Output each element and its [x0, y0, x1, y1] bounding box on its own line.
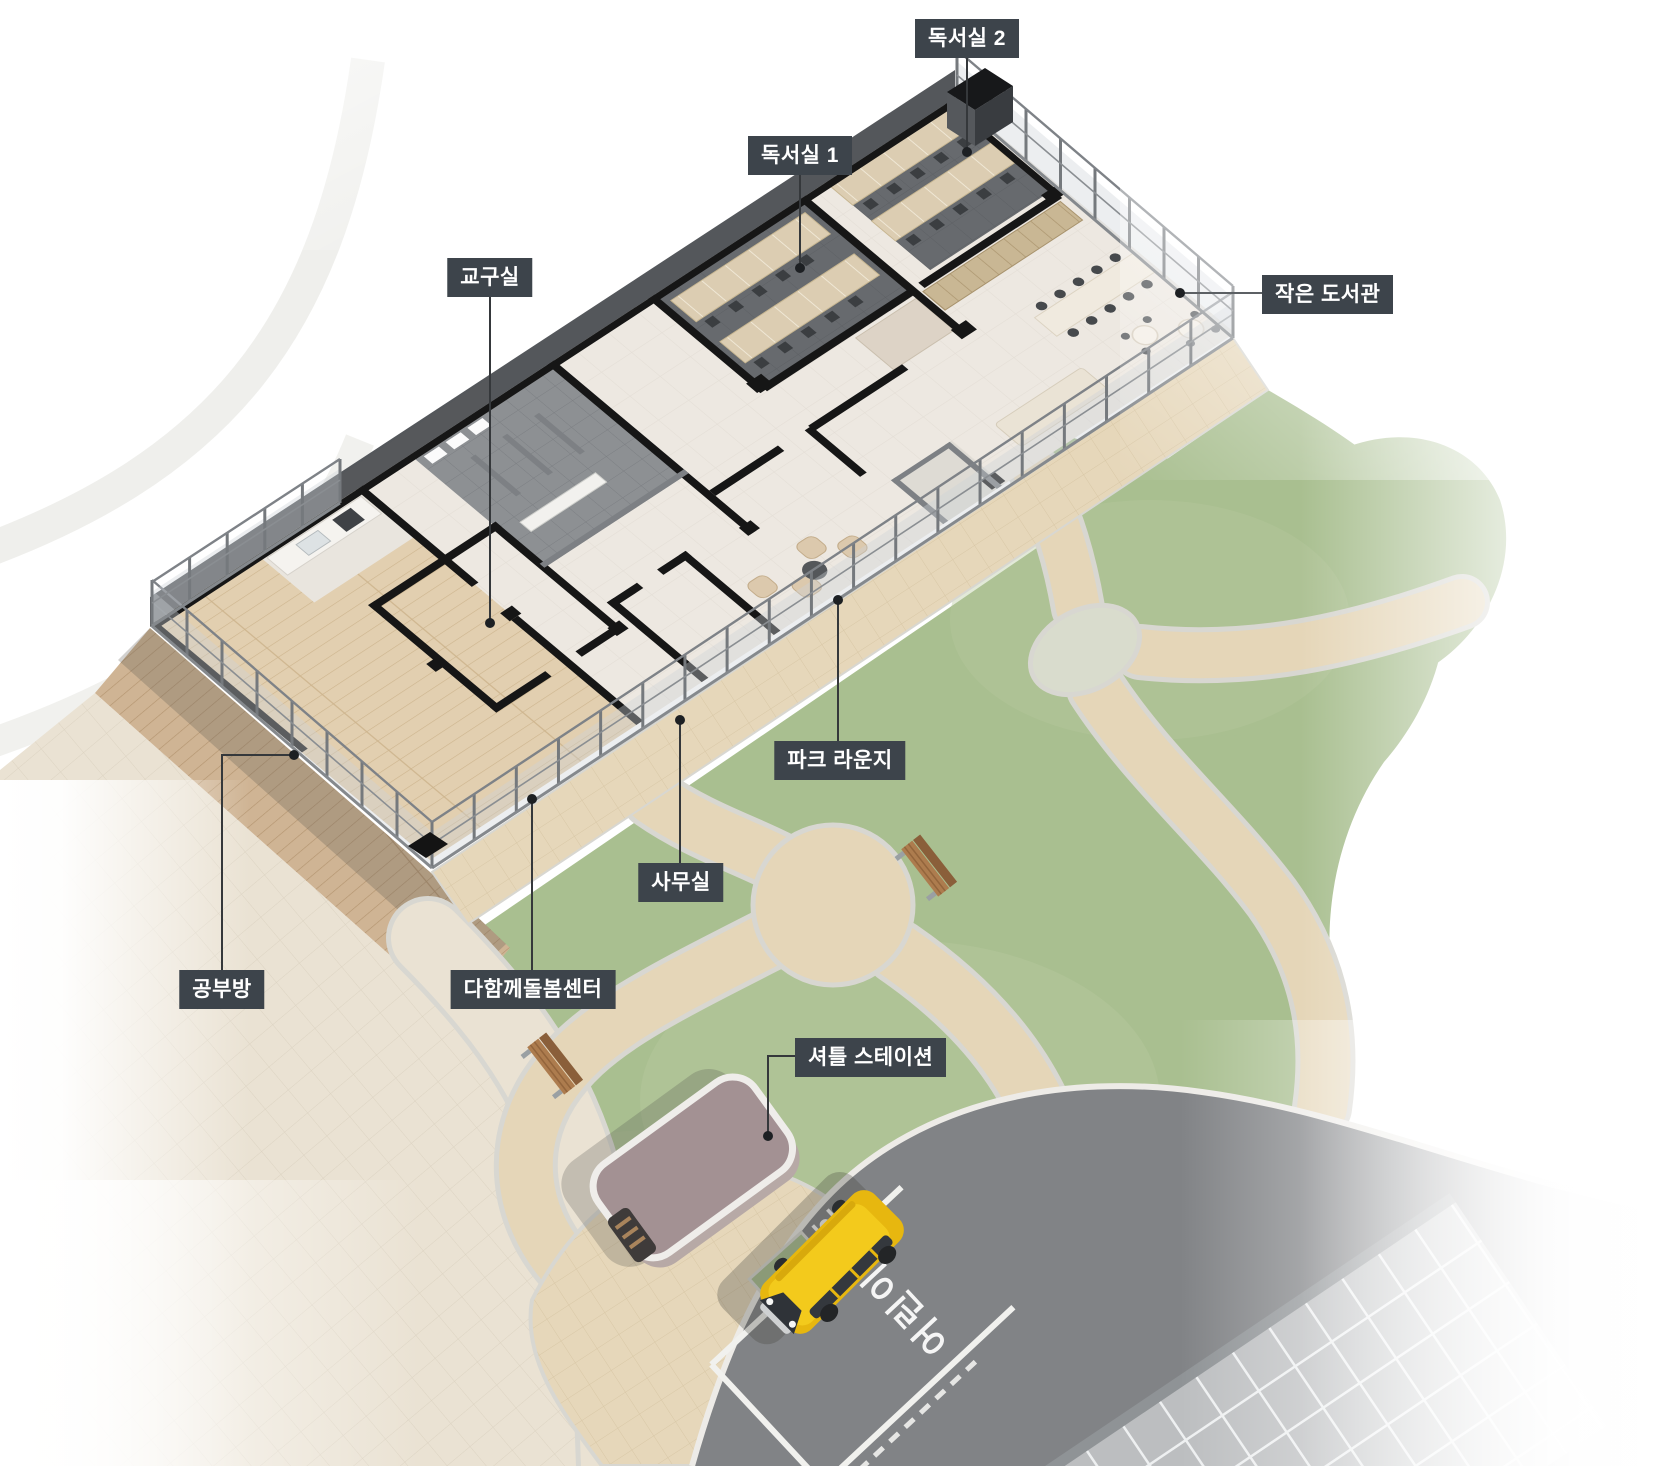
label-reading-room-2: 독서실 2 — [915, 19, 1019, 58]
label-shuttle-station: 셔틀 스테이션 — [795, 1038, 946, 1077]
label-study-room: 공부방 — [179, 970, 264, 1009]
label-reading-room-1: 독서실 1 — [748, 136, 852, 175]
label-park-lounge: 파크 라운지 — [774, 741, 905, 780]
annotated-floorplan-scene: 어린이보호 — [0, 0, 1672, 1466]
scene-illustration: 어린이보호 — [0, 0, 1672, 1466]
label-teaching-material-room: 교구실 — [447, 258, 532, 297]
label-community-care-center: 다함께돌봄센터 — [451, 970, 616, 1009]
circular-plaza — [753, 825, 913, 985]
label-office: 사무실 — [638, 863, 723, 902]
label-small-library: 작은 도서관 — [1262, 275, 1393, 314]
